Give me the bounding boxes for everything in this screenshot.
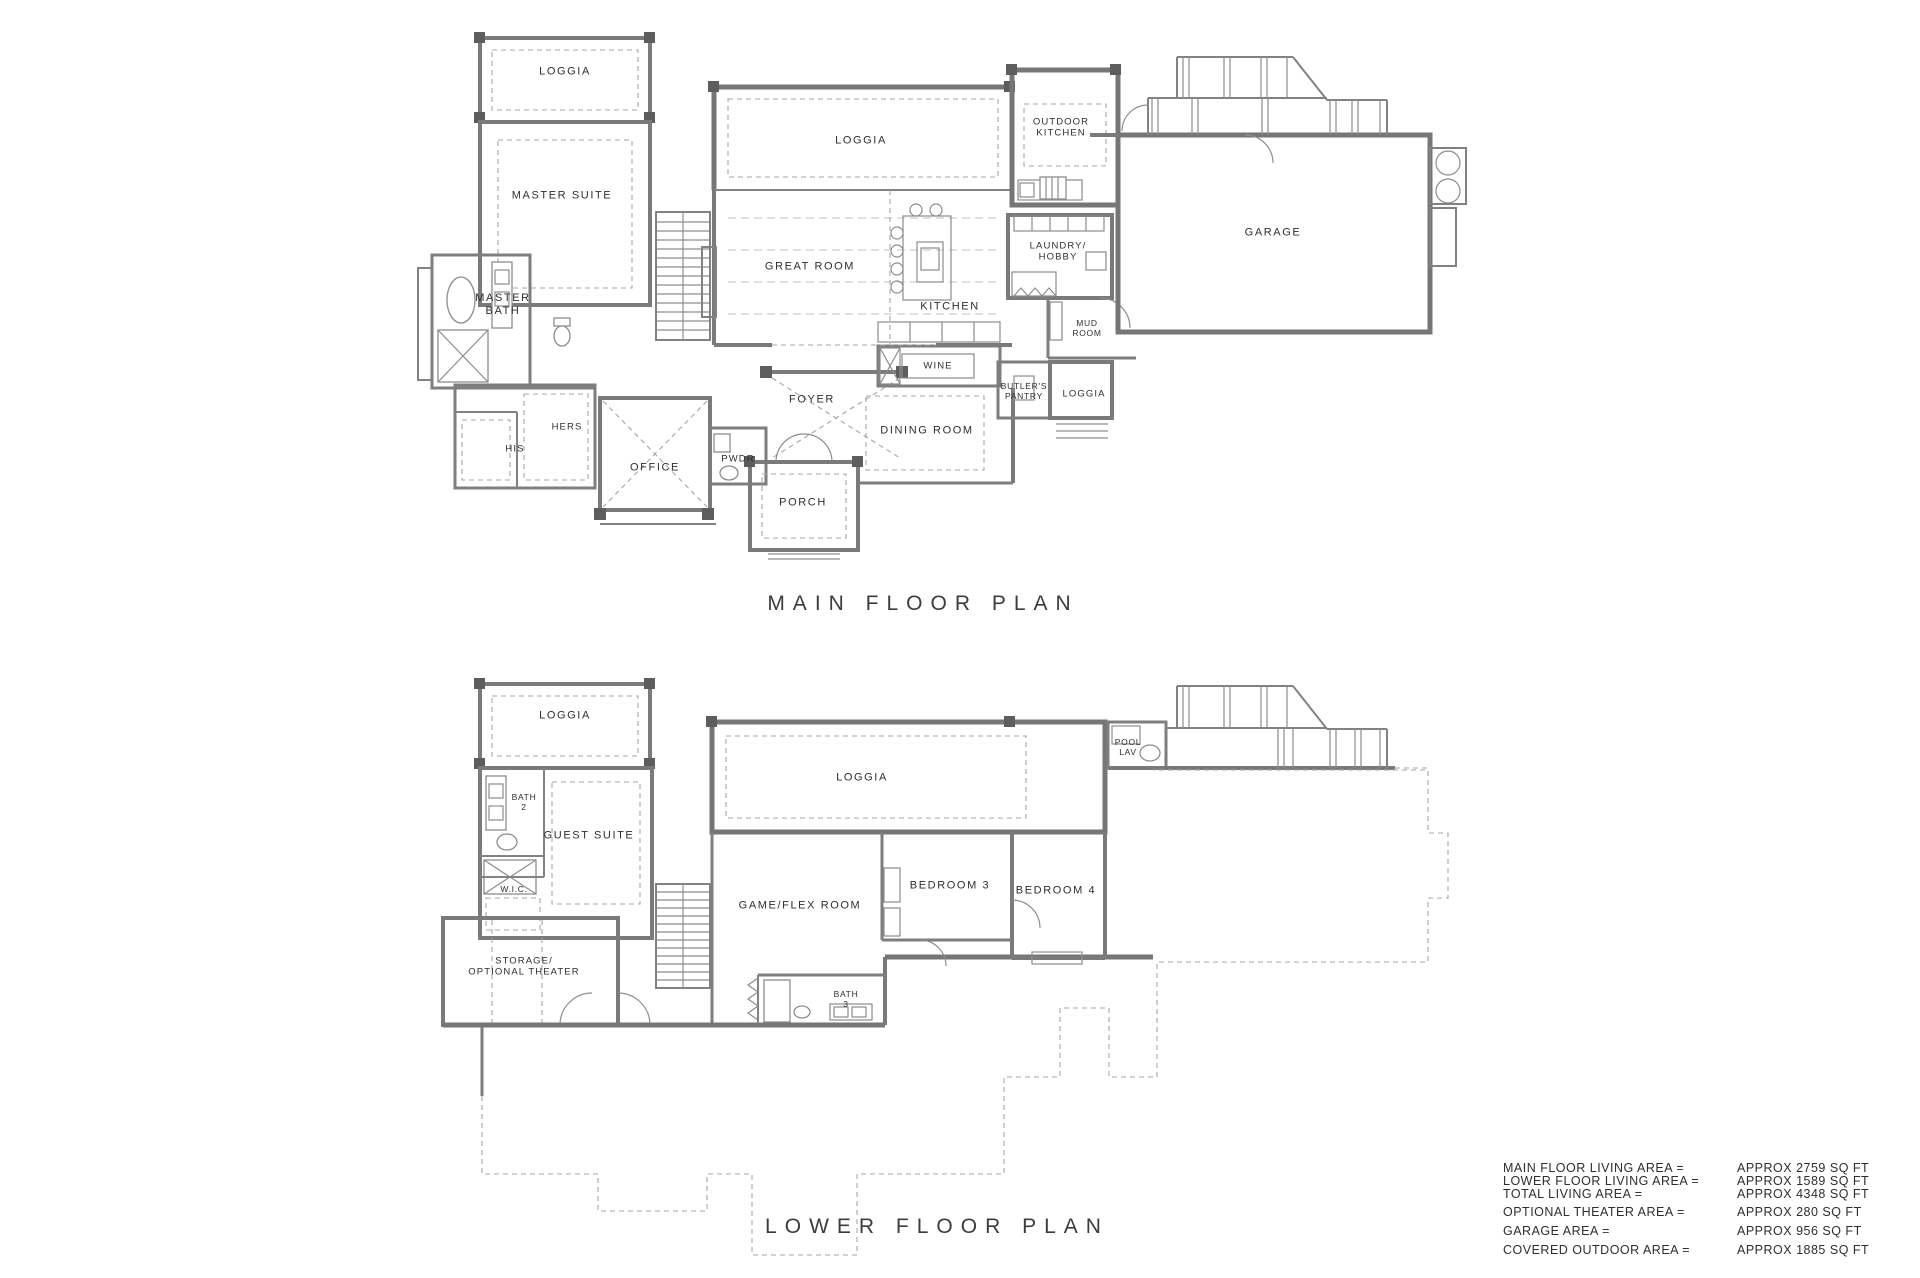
area-row-value: APPROX 4348 SQ FT <box>1737 1188 1908 1201</box>
area-row-garage: GARAGE AREA = APPROX 956 SQ FT <box>1503 1225 1908 1238</box>
area-row-total-living: TOTAL LIVING AREA = APPROX 4348 SQ FT <box>1503 1188 1908 1201</box>
room-label-great-loggia: LOGGIA <box>835 134 887 147</box>
room-label-se-loggia: LOGGIA <box>1062 388 1105 399</box>
area-row-label: LOWER FLOOR LIVING AREA = <box>1503 1175 1737 1188</box>
area-row-lower-floor: LOWER FLOOR LIVING AREA = APPROX 1589 SQ… <box>1503 1175 1908 1188</box>
room-label-bedroom-4: BEDROOM 4 <box>1016 884 1096 897</box>
area-row-label: COVERED OUTDOOR AREA = <box>1503 1244 1737 1257</box>
area-row-value: APPROX 956 SQ FT <box>1737 1225 1908 1238</box>
room-label-dining-room: DINING ROOM <box>880 424 973 437</box>
area-row-label: GARAGE AREA = <box>1503 1225 1737 1238</box>
room-label-wic: W.I.C. <box>500 884 527 894</box>
area-row-label: OPTIONAL THEATER AREA = <box>1503 1206 1737 1219</box>
room-label-hers: HERS <box>552 421 583 432</box>
main-floor-exterior-stairs <box>1122 57 1387 135</box>
room-label-bath-3: BATH 3 <box>834 989 859 1009</box>
main-floor-plan-title: MAIN FLOOR PLAN <box>767 592 1078 616</box>
room-label-bedroom-3: BEDROOM 3 <box>910 879 990 892</box>
room-label-pool-lav: POOL LAV <box>1115 737 1141 757</box>
area-row-theater: OPTIONAL THEATER AREA = APPROX 280 SQ FT <box>1503 1206 1908 1219</box>
area-row-covered-outdoor: COVERED OUTDOOR AREA = APPROX 1885 SQ FT <box>1503 1244 1908 1257</box>
room-label-game-flex-room: GAME/FLEX ROOM <box>739 899 862 912</box>
area-row-label: MAIN FLOOR LIVING AREA = <box>1503 1162 1737 1175</box>
area-summary-table: MAIN FLOOR LIVING AREA = APPROX 2759 SQ … <box>1503 1162 1908 1257</box>
floor-plan-linework <box>0 0 1920 1278</box>
lower-floor-exterior-stairs <box>1167 686 1387 768</box>
room-label-guest-suite: GUEST SUITE <box>544 829 635 842</box>
area-row-value: APPROX 280 SQ FT <box>1737 1206 1908 1219</box>
room-label-storage-theater: STORAGE/ OPTIONAL THEATER <box>468 956 579 979</box>
room-label-his: HIS <box>505 443 524 454</box>
main-floor-walls <box>418 32 1466 559</box>
room-label-garage: GARAGE <box>1245 226 1302 239</box>
area-row-value: APPROX 1589 SQ FT <box>1737 1175 1908 1188</box>
lower-floor-plan-title: LOWER FLOOR PLAN <box>765 1215 1109 1239</box>
area-row-main-floor: MAIN FLOOR LIVING AREA = APPROX 2759 SQ … <box>1503 1162 1908 1175</box>
room-label-bath-2: BATH 2 <box>512 792 537 812</box>
floor-plan-sheet: LOGGIA MASTER SUITE MASTER BATH HIS HERS… <box>0 0 1920 1278</box>
room-label-office: OFFICE <box>630 461 680 474</box>
room-label-outdoor-kitchen: OUTDOOR KITCHEN <box>1033 117 1089 140</box>
room-label-pwdr: PWDR <box>721 453 754 464</box>
room-label-lower-loggia-left: LOGGIA <box>539 709 591 722</box>
room-label-porch: PORCH <box>779 496 827 509</box>
area-row-value: APPROX 2759 SQ FT <box>1737 1162 1908 1175</box>
room-label-butlers-pantry: BUTLER'S PANTRY <box>1001 381 1047 401</box>
room-label-master-loggia: LOGGIA <box>539 65 591 78</box>
room-label-lower-loggia-center: LOGGIA <box>836 771 888 784</box>
room-label-laundry-hobby: LAUNDRY/ HOBBY <box>1030 241 1087 264</box>
room-label-mud-room: MUD ROOM <box>1072 318 1101 338</box>
room-label-foyer: FOYER <box>789 393 835 406</box>
room-label-great-room: GREAT ROOM <box>765 260 855 273</box>
area-row-value: APPROX 1885 SQ FT <box>1737 1244 1908 1257</box>
room-label-master-bath: MASTER BATH <box>475 292 530 318</box>
room-label-master-suite: MASTER SUITE <box>512 189 613 202</box>
area-row-label: TOTAL LIVING AREA = <box>1503 1188 1737 1201</box>
room-label-kitchen: KITCHEN <box>920 300 979 313</box>
room-label-wine: WINE <box>923 360 952 371</box>
